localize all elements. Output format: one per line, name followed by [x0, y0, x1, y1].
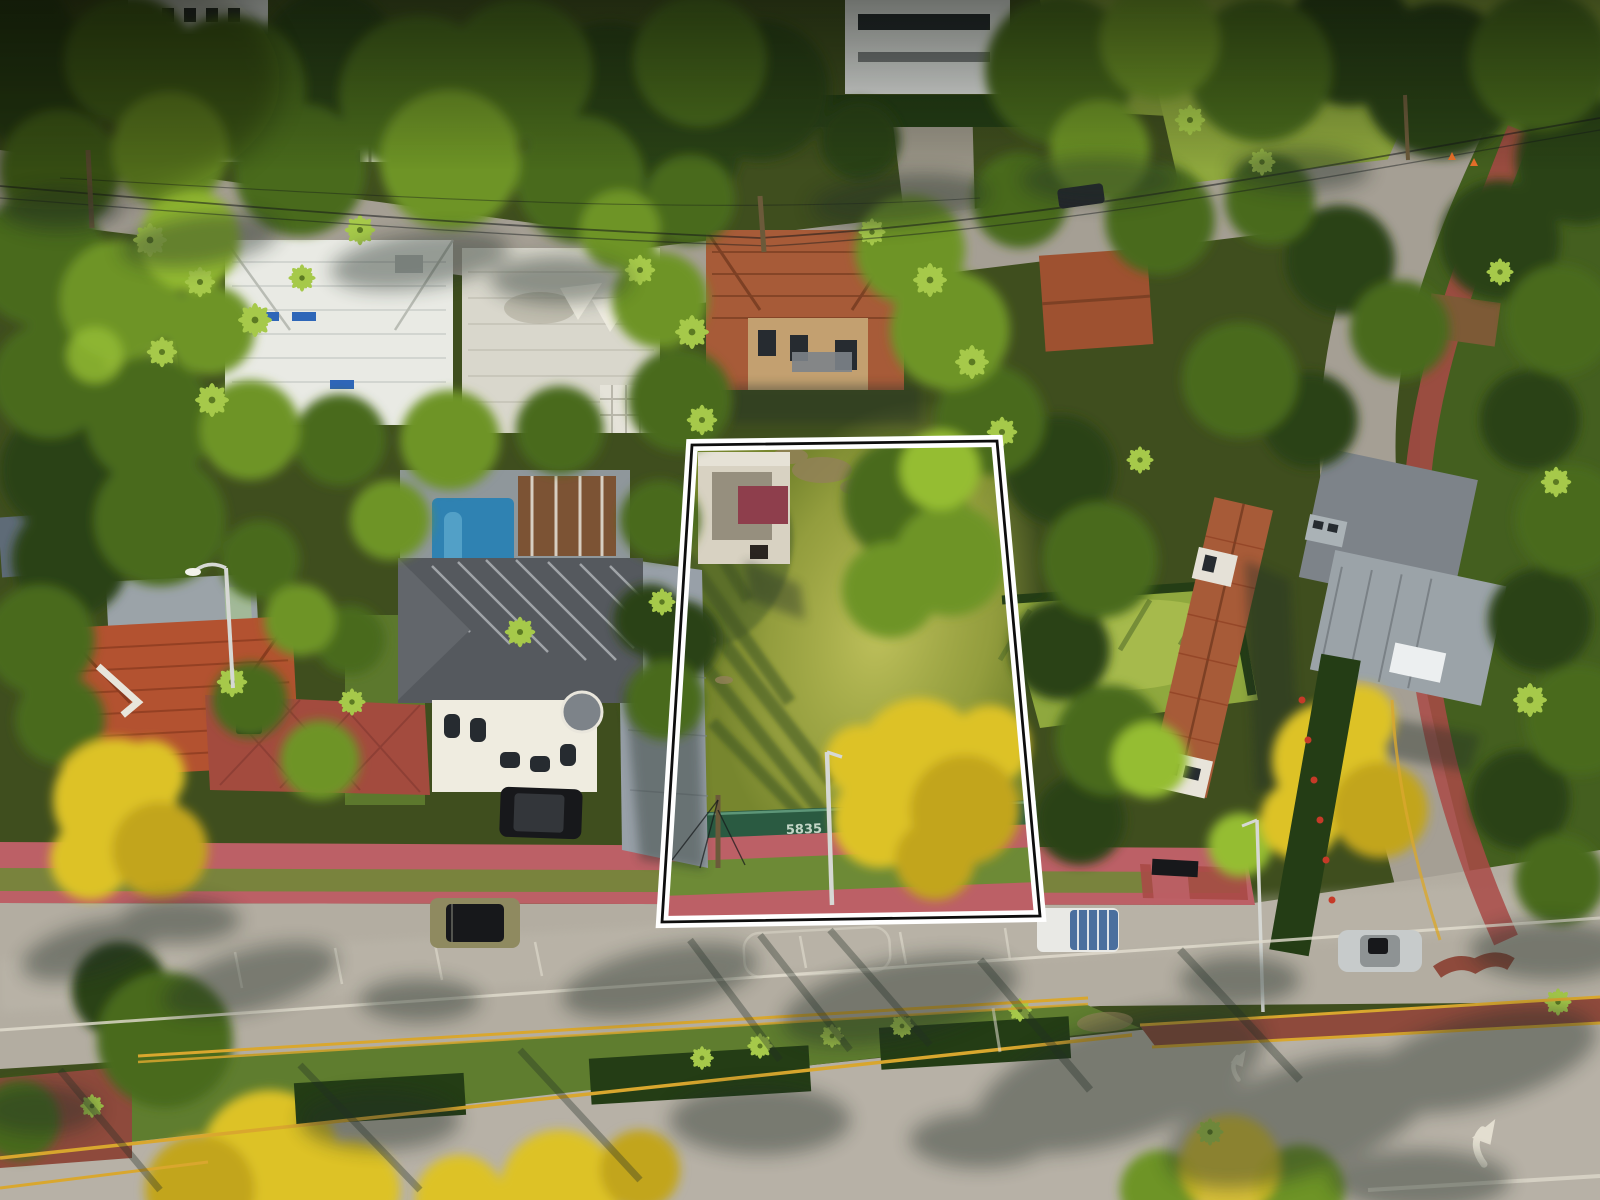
- balcony: [792, 352, 852, 372]
- dark-driveway-gate: [1152, 859, 1199, 877]
- fence-address-number: 5835: [786, 822, 823, 838]
- black-suv-in-driveway: [499, 787, 583, 840]
- white-pickup-blue-bed-cover: [1037, 908, 1119, 952]
- olive-suv-parked-on-road: [430, 898, 520, 948]
- ruin-doorway: [750, 545, 768, 559]
- ruined-structure: [698, 452, 790, 564]
- aerial-photo: 5835: [0, 0, 1600, 1200]
- maroon-roof-panel: [738, 486, 788, 524]
- silver-sedan: [1338, 930, 1422, 972]
- sunroof: [1368, 938, 1388, 954]
- aerial-photo-canvas: 5835: [0, 0, 1600, 1200]
